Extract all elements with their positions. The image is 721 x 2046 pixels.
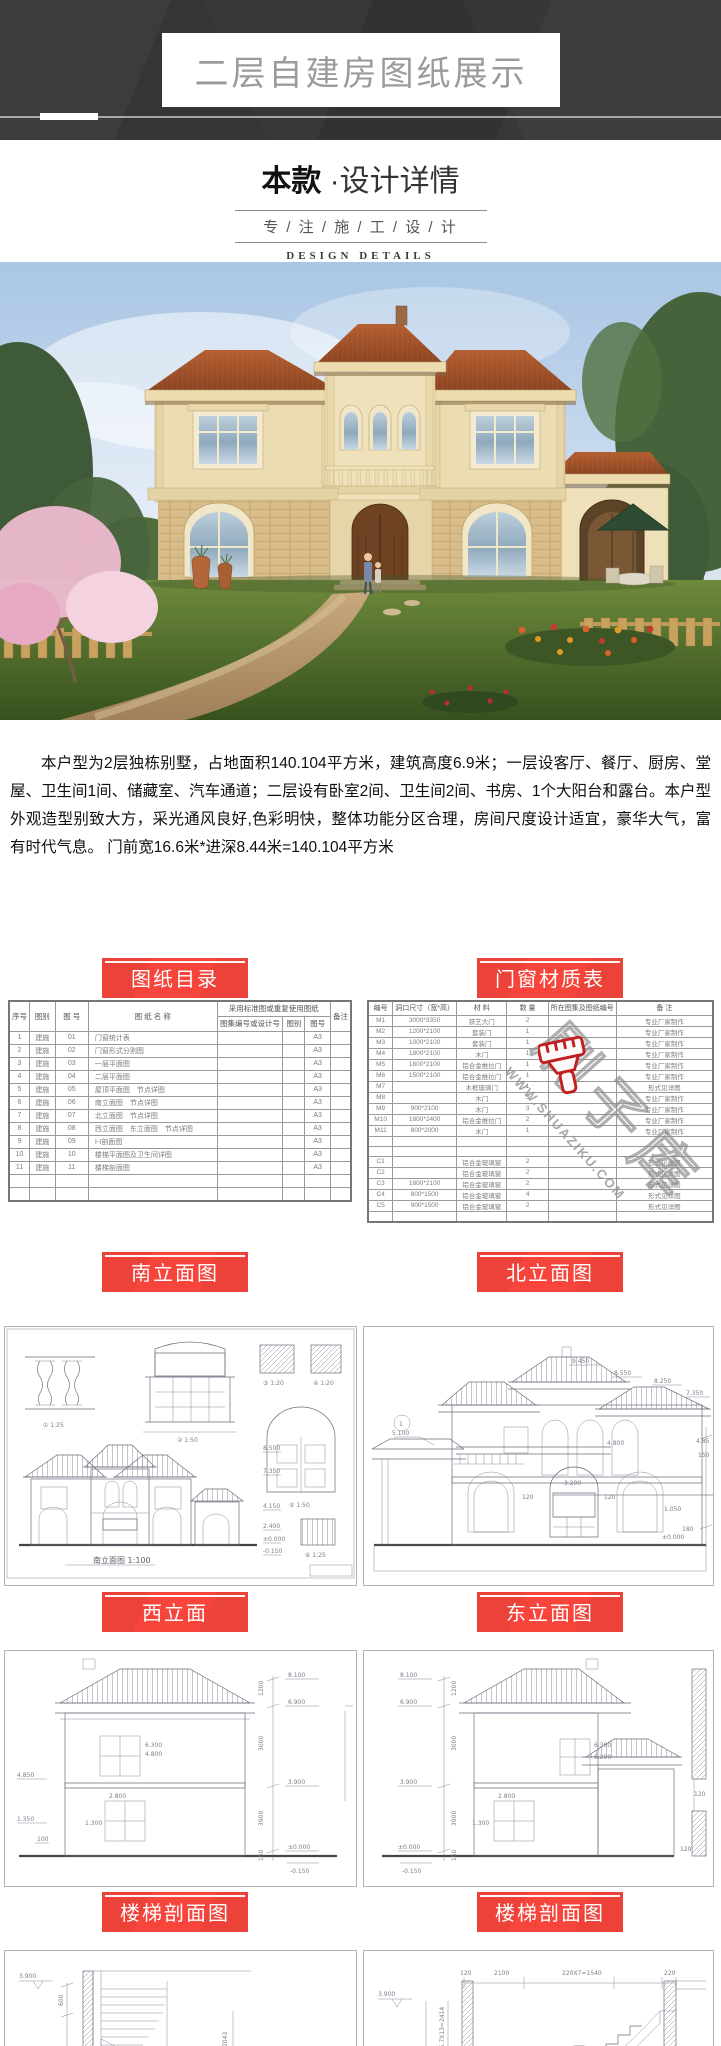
cell-size: 1800*2100 (393, 1059, 457, 1070)
cell-material: 铝合金玻璃窗 (457, 1178, 507, 1189)
table-row: 2 建施 02 门窗形式分割图 A3 (9, 1044, 351, 1057)
cell-no: 9 (9, 1135, 30, 1148)
cell-reuse-cat (283, 1044, 305, 1057)
svg-text:6.300: 6.300 (594, 1742, 611, 1749)
svg-text:8.100: 8.100 (400, 1672, 417, 1679)
cell-cat: 建施 (30, 1031, 56, 1044)
svg-text:5.100: 5.100 (392, 1430, 409, 1437)
cell-qty: 1 (507, 1037, 548, 1048)
cell-note (616, 1146, 713, 1156)
tables-row: 序号 图别 图 号 图 纸 名 称 采用标准图或重复使用图纸 备注 图集编号或设… (0, 1000, 721, 1223)
cell-name: 西立面图 东立面图 节点详图 (88, 1122, 217, 1135)
table-row (368, 1146, 713, 1156)
drawing-catalog-table: 序号 图别 图 号 图 纸 名 称 采用标准图或重复使用图纸 备注 图集编号或设… (8, 1000, 352, 1202)
table-row: 11 建施 11 楼梯剖面图 A3 (9, 1161, 351, 1174)
svg-text:150: 150 (258, 1849, 265, 1861)
north-elevation-panel: 9.450 8.550 8.250 7.350 1 5.100 4.800 3.… (363, 1326, 714, 1586)
cell-location (548, 1200, 616, 1211)
table-row: 4 建施 04 二层平面图 A3 (9, 1070, 351, 1083)
cell-no: 8 (9, 1122, 30, 1135)
cell-location (548, 1178, 616, 1189)
cell-qty (507, 1146, 548, 1156)
cell-reuse-id (217, 1044, 283, 1057)
page-title-bold: 本款 (261, 165, 321, 198)
svg-text:150: 150 (451, 1849, 458, 1861)
section-label-catalog: 图纸目录 (102, 958, 248, 998)
cell-code: C2 (368, 1167, 393, 1178)
cell-material: 铝合金玻璃窗 (457, 1167, 507, 1178)
table-row: M3 1000*2100 套装门 1 专业厂家制作 (368, 1037, 713, 1048)
cell-note (330, 1174, 351, 1187)
cell-material: 铁艺大门 (457, 1015, 507, 1026)
table-row: M1 3000*3350 铁艺大门 2 专业厂家制作 (368, 1015, 713, 1026)
cell-code: C3 (368, 1178, 393, 1189)
cell-reuse-cat (283, 1083, 305, 1096)
page-title-rest: ·设计详情 (321, 165, 459, 198)
cell-note (330, 1031, 351, 1044)
cell-size: 800*2000 (393, 1125, 457, 1136)
col-header-reuse-cat: 图别 (283, 1016, 305, 1031)
cell-num: 02 (55, 1044, 88, 1057)
svg-text:-0.150: -0.150 (263, 1548, 283, 1555)
svg-text:2.800: 2.800 (498, 1793, 515, 1800)
cell-note: 形式见详图 (616, 1178, 713, 1189)
label-row-tables: 图纸目录 门窗材质表 (0, 958, 721, 998)
svg-text:3.900: 3.900 (400, 1779, 417, 1786)
cell-reuse-no (305, 1187, 331, 1201)
cell-code: M3 (368, 1037, 393, 1048)
cell-reuse-no: A3 (305, 1083, 331, 1096)
cell-note (330, 1096, 351, 1109)
svg-text:120: 120 (522, 1494, 534, 1501)
cell-reuse-cat (283, 1096, 305, 1109)
cell-num (55, 1187, 88, 1201)
label-row-stairs: 楼梯剖面图 楼梯剖面图 (0, 1892, 721, 1932)
svg-text:220: 220 (664, 1970, 676, 1977)
cell-note (330, 1083, 351, 1096)
table-row: M5 1800*2100 铝合金推拉门 1 专业厂家制作 (368, 1059, 713, 1070)
product-detail-page: 二层自建房图纸展示 本款 ·设计详情 专 / 注 / 施 / 工 / 设 / 计… (0, 0, 721, 2046)
cell-code: M8 (368, 1092, 393, 1103)
cell-code: M10 (368, 1114, 393, 1125)
col-header-code: 编号 (368, 1001, 393, 1016)
cell-no: 11 (9, 1161, 30, 1174)
svg-text:3.900: 3.900 (288, 1779, 305, 1786)
cell-note (330, 1161, 351, 1174)
cell-material: 铝合金推拉门 (457, 1114, 507, 1125)
cell-material: 铝合金推拉门 (457, 1059, 507, 1070)
svg-text:4.800: 4.800 (607, 1440, 624, 1447)
cell-note: 专业厂家制作 (616, 1092, 713, 1103)
svg-text:120: 120 (604, 1494, 616, 1501)
cell-material: 铝合金玻璃窗 (457, 1200, 507, 1211)
cell-num: 03 (55, 1057, 88, 1070)
cell-material: 铝合金玻璃窗 (457, 1189, 507, 1200)
svg-text:±0.000: ±0.000 (662, 1534, 684, 1541)
cell-note (330, 1070, 351, 1083)
cell-cat: 建施 (30, 1096, 56, 1109)
stair-section-left-panel: 3.900 ±0.000 600 2400 900 (4, 1950, 357, 2046)
cell-qty: 1 (507, 1081, 548, 1092)
cell-location (548, 1103, 616, 1114)
cell-cat: 建施 (30, 1122, 56, 1135)
cell-note (330, 1135, 351, 1148)
section-label-stair-left: 楼梯剖面图 (102, 1892, 248, 1932)
banner-title: 二层自建房图纸展示 (195, 46, 528, 95)
cell-reuse-id (217, 1135, 283, 1148)
cell-qty: 2 (507, 1178, 548, 1189)
stair-panels: 3.900 ±0.000 600 2400 900 (0, 1950, 721, 2046)
svg-text:1.350: 1.350 (17, 1816, 34, 1823)
elevation-panels-1: ① 1:25 ② 1:50 ③ 1:20 ④ 1:20 (0, 1326, 721, 1586)
table-row: 1 建施 01 门窗统计表 A3 (9, 1031, 351, 1044)
svg-text:2.400: 2.400 (263, 1523, 280, 1530)
cell-num (55, 1174, 88, 1187)
cell-reuse-cat (283, 1187, 305, 1201)
cell-size: 1800*2400 (393, 1114, 457, 1125)
col-header-note: 备 注 (616, 1001, 713, 1016)
cell-material: 套装门 (457, 1037, 507, 1048)
cell-reuse-id (217, 1187, 283, 1201)
cell-qty: 2 (507, 1114, 548, 1125)
col-header-no: 序号 (9, 1001, 30, 1032)
cell-qty: 1 (507, 1070, 548, 1081)
cell-reuse-id (217, 1148, 283, 1161)
cell-note: 专业厂家制作 (616, 1037, 713, 1048)
cell-material: 铝合金玻璃窗 (457, 1156, 507, 1167)
cell-note (330, 1057, 351, 1070)
table-row: 8 建施 08 西立面图 东立面图 节点详图 A3 (9, 1122, 351, 1135)
cell-size: 1000*2100 (393, 1037, 457, 1048)
svg-text:⑤ 1:50: ⑤ 1:50 (289, 1502, 310, 1509)
cell-num: 04 (55, 1070, 88, 1083)
cell-material: 木门 (457, 1092, 507, 1103)
table-row: 10 建施 10 楼梯平面图及卫生间详图 A3 (9, 1148, 351, 1161)
elevation-panels-2: 4.850 1.350 100 6.300 4.800 2.800 1.300 … (0, 1650, 721, 1887)
cell-cat: 建施 (30, 1161, 56, 1174)
cell-reuse-id (217, 1070, 283, 1083)
cell-cat: 建施 (30, 1083, 56, 1096)
cell-cat (30, 1187, 56, 1201)
south-elevation-panel: ① 1:25 ② 1:50 ③ 1:20 ④ 1:20 (4, 1326, 357, 1586)
svg-text:185.7X11=2043: 185.7X11=2043 (222, 2031, 229, 2046)
cell-reuse-no: A3 (305, 1122, 331, 1135)
svg-text:6.200: 6.200 (594, 1754, 611, 1761)
table-row (368, 1211, 713, 1222)
svg-text:3000: 3000 (258, 1735, 265, 1750)
header-divider-line (0, 116, 721, 118)
svg-text:600: 600 (58, 1994, 65, 2006)
cell-name: 北立面图 节点详图 (88, 1109, 217, 1122)
cell-name (88, 1187, 217, 1201)
cell-location (548, 1070, 616, 1081)
cell-size: 800*1500 (393, 1189, 457, 1200)
cell-cat: 建施 (30, 1109, 56, 1122)
svg-text:1.300: 1.300 (472, 1820, 489, 1827)
cell-material: 套装门 (457, 1026, 507, 1037)
svg-text:4.150: 4.150 (263, 1503, 280, 1510)
cell-code: M5 (368, 1059, 393, 1070)
cell-num: 01 (55, 1031, 88, 1044)
svg-text:③ 1:20: ③ 1:20 (263, 1380, 284, 1387)
svg-text:② 1:50: ② 1:50 (177, 1437, 198, 1444)
cell-qty: 1 (507, 1125, 548, 1136)
col-header-note: 备注 (330, 1001, 351, 1032)
svg-text:9.450: 9.450 (572, 1358, 589, 1365)
cell-name: 南立面图 节点详图 (88, 1096, 217, 1109)
cell-num: 10 (55, 1148, 88, 1161)
svg-text:1200: 1200 (451, 1680, 458, 1695)
svg-text:220X7=1540: 220X7=1540 (562, 1970, 602, 1977)
cell-code: M11 (368, 1125, 393, 1136)
svg-text:8.100: 8.100 (288, 1672, 305, 1679)
cell-no: 5 (9, 1083, 30, 1096)
cell-reuse-cat (283, 1109, 305, 1122)
table-row: C2 铝合金玻璃窗 2 形式见详图 (368, 1167, 713, 1178)
table-row: C5 900*1500 铝合金玻璃窗 2 形式见详图 (368, 1200, 713, 1211)
cell-location (548, 1156, 616, 1167)
cell-num: 07 (55, 1109, 88, 1122)
col-header-reuse-id: 图集编号或设计号 (217, 1016, 283, 1031)
cell-qty: 1 (507, 1048, 548, 1059)
cell-code (368, 1211, 393, 1222)
east-elevation-panel: 6.300 6.200 2.800 1.300 8.100 6.900 3.90… (363, 1650, 714, 1887)
cell-note (616, 1136, 713, 1146)
cell-reuse-no: A3 (305, 1057, 331, 1070)
table-row (368, 1136, 713, 1146)
svg-text:120: 120 (460, 1970, 472, 1977)
banner-title-box: 二层自建房图纸展示 (162, 33, 560, 107)
svg-text:7.350: 7.350 (686, 1390, 703, 1397)
cell-qty: 1 (507, 1059, 548, 1070)
cell-location (548, 1114, 616, 1125)
cell-name: 门窗形式分割图 (88, 1044, 217, 1057)
svg-text:185.7X13=2414: 185.7X13=2414 (439, 2006, 446, 2046)
table-row: 3 建施 03 一层平面图 A3 (9, 1057, 351, 1070)
cell-material: 木框玻璃门 (457, 1081, 507, 1092)
label-row-south-north: 南立面图 北立面图 (0, 1252, 721, 1292)
svg-text:120: 120 (694, 1791, 706, 1798)
svg-text:150: 150 (698, 1452, 710, 1459)
cell-note: 专业厂家制作 (616, 1015, 713, 1026)
cell-reuse-cat (283, 1135, 305, 1148)
cell-no: 4 (9, 1070, 30, 1083)
cell-code: M6 (368, 1070, 393, 1081)
svg-text:180: 180 (682, 1526, 694, 1533)
cell-note: 形式见详图 (616, 1189, 713, 1200)
svg-text:3.200: 3.200 (564, 1480, 581, 1487)
svg-text:⑥ 1:25: ⑥ 1:25 (305, 1552, 326, 1559)
col-header-location: 所在图集及图纸编号 (548, 1001, 616, 1016)
cell-location (548, 1136, 616, 1146)
cell-reuse-id (217, 1083, 283, 1096)
cell-note (330, 1148, 351, 1161)
table-row: M2 1200*2100 套装门 1 专业厂家制作 (368, 1026, 713, 1037)
cell-location (548, 1037, 616, 1048)
cell-no: 10 (9, 1148, 30, 1161)
cell-no: 1 (9, 1031, 30, 1044)
cell-material (457, 1146, 507, 1156)
col-header-num: 图 号 (55, 1001, 88, 1032)
cell-material (457, 1136, 507, 1146)
cell-note: 形式见详图 (616, 1156, 713, 1167)
cell-size: 900*2100 (393, 1103, 457, 1114)
col-header-size: 洞口尺寸（宽*高） (393, 1001, 457, 1016)
cell-note (330, 1122, 351, 1135)
cell-note: 专业厂家制作 (616, 1125, 713, 1136)
svg-text:±0.000: ±0.000 (288, 1844, 310, 1851)
table-row: M10 1800*2400 铝合金推拉门 2 专业厂家制作 (368, 1114, 713, 1125)
cell-code: C4 (368, 1189, 393, 1200)
cell-note (616, 1211, 713, 1222)
svg-text:1.300: 1.300 (85, 1820, 102, 1827)
cell-qty: 2 (507, 1200, 548, 1211)
col-header-reuse-no: 图号 (305, 1016, 331, 1031)
cell-no: 3 (9, 1057, 30, 1070)
table-row: C3 1800*2100 铝合金玻璃窗 2 形式见详图 (368, 1178, 713, 1189)
cell-reuse-cat (283, 1057, 305, 1070)
col-header-reuse-group: 采用标准图或重复使用图纸 (217, 1001, 330, 1017)
cell-reuse-cat (283, 1031, 305, 1044)
cell-location (548, 1026, 616, 1037)
cell-location (548, 1048, 616, 1059)
cell-reuse-id (217, 1109, 283, 1122)
cell-qty: 2 (507, 1015, 548, 1026)
svg-text:100: 100 (37, 1836, 49, 1843)
cell-note (330, 1044, 351, 1057)
cell-no: 6 (9, 1096, 30, 1109)
cell-qty (507, 1136, 548, 1146)
cell-cat: 建施 (30, 1148, 56, 1161)
table-row: 9 建施 09 Ⅰ-Ⅰ剖面图 A3 (9, 1135, 351, 1148)
cell-num: 08 (55, 1122, 88, 1135)
cell-location (548, 1081, 616, 1092)
cell-num: 09 (55, 1135, 88, 1148)
cell-reuse-no: A3 (305, 1070, 331, 1083)
cell-reuse-no (305, 1174, 331, 1187)
svg-text:6.300: 6.300 (145, 1742, 162, 1749)
table-row: M9 900*2100 木门 3 专业厂家制作 (368, 1103, 713, 1114)
table-row (9, 1174, 351, 1187)
cell-code: M9 (368, 1103, 393, 1114)
cell-cat: 建施 (30, 1057, 56, 1070)
cell-reuse-no: A3 (305, 1109, 331, 1122)
cell-note: 形式见详图 (616, 1167, 713, 1178)
cell-no (9, 1174, 30, 1187)
cell-code: M1 (368, 1015, 393, 1026)
cell-size (393, 1146, 457, 1156)
table-row: 6 建施 06 南立面图 节点详图 A3 (9, 1096, 351, 1109)
cell-material: 铝合金推拉门 (457, 1070, 507, 1081)
cell-name: 屋顶平面图 节点详图 (88, 1083, 217, 1096)
west-elevation-panel: 4.850 1.350 100 6.300 4.800 2.800 1.300 … (4, 1650, 357, 1887)
cell-qty: 4 (507, 1189, 548, 1200)
cell-note: 形式见详图 (616, 1200, 713, 1211)
cell-code: M4 (368, 1048, 393, 1059)
svg-text:4.85: 4.85 (696, 1438, 710, 1445)
svg-text:-0.150: -0.150 (290, 1868, 310, 1875)
cell-location (548, 1167, 616, 1178)
svg-text:8.550: 8.550 (614, 1370, 631, 1377)
svg-text:3900: 3900 (258, 1810, 265, 1825)
svg-text:4.850: 4.850 (17, 1772, 34, 1779)
svg-text:120: 120 (680, 1846, 692, 1853)
cell-size (393, 1136, 457, 1146)
section-label-north-elevation: 北立面图 (477, 1252, 623, 1292)
cell-note (330, 1109, 351, 1122)
svg-text:6.900: 6.900 (288, 1699, 305, 1706)
svg-text:3900: 3900 (451, 1810, 458, 1825)
cell-name: Ⅰ-Ⅰ剖面图 (88, 1135, 217, 1148)
cell-size (393, 1092, 457, 1103)
cell-location (548, 1059, 616, 1070)
cell-location (548, 1189, 616, 1200)
cell-name: 一层平面图 (88, 1057, 217, 1070)
svg-text:南立面图 1:100: 南立面图 1:100 (93, 1555, 151, 1565)
svg-text:8.500: 8.500 (263, 1445, 280, 1452)
cell-qty: 1 (507, 1026, 548, 1037)
cell-code (368, 1146, 393, 1156)
cell-location (548, 1146, 616, 1156)
cell-code: M7 (368, 1081, 393, 1092)
table-row: 5 建施 05 屋顶平面图 节点详图 A3 (9, 1083, 351, 1096)
cell-size: 1200*2100 (393, 1026, 457, 1037)
svg-text:3.900: 3.900 (19, 1973, 36, 1980)
cell-no: 2 (9, 1044, 30, 1057)
cell-code: C1 (368, 1156, 393, 1167)
page-header: 二层自建房图纸展示 (0, 0, 721, 140)
stair-section-right-panel: 120 2100 220X7=1540 220 3.900 ±0.000 -0.… (363, 1950, 714, 2046)
cell-reuse-cat (283, 1174, 305, 1187)
cell-qty: 3 (507, 1103, 548, 1114)
svg-text:1.050: 1.050 (664, 1506, 681, 1513)
col-header-material: 材 料 (457, 1001, 507, 1016)
cell-num: 05 (55, 1083, 88, 1096)
cell-code: M2 (368, 1026, 393, 1037)
section-label-south-elevation: 南立面图 (102, 1252, 248, 1292)
cell-note: 专业厂家制作 (616, 1026, 713, 1037)
cell-reuse-cat (283, 1161, 305, 1174)
table-row (9, 1187, 351, 1201)
cell-reuse-id (217, 1174, 283, 1187)
table-row: M6 1500*2100 铝合金推拉门 1 专业厂家制作 (368, 1070, 713, 1081)
svg-text:7.350: 7.350 (263, 1468, 280, 1475)
cell-num: 06 (55, 1096, 88, 1109)
cell-code: C5 (368, 1200, 393, 1211)
cell-cat: 建施 (30, 1044, 56, 1057)
svg-text:4.800: 4.800 (145, 1751, 162, 1758)
cell-no: 7 (9, 1109, 30, 1122)
cell-size: 900*1500 (393, 1200, 457, 1211)
cell-size (393, 1081, 457, 1092)
cell-location (548, 1125, 616, 1136)
cell-name (88, 1174, 217, 1187)
cell-reuse-cat (283, 1070, 305, 1083)
cell-code (368, 1136, 393, 1146)
svg-text:±0.000: ±0.000 (398, 1844, 420, 1851)
cell-note: 专业厂家制作 (616, 1114, 713, 1125)
svg-text:3000: 3000 (451, 1735, 458, 1750)
cell-size (393, 1156, 457, 1167)
svg-text:6.900: 6.900 (400, 1699, 417, 1706)
table-row: C1 铝合金玻璃窗 2 形式见详图 (368, 1156, 713, 1167)
cell-size (393, 1211, 457, 1222)
svg-text:1: 1 (399, 1421, 403, 1428)
cell-qty: 2 (507, 1156, 548, 1167)
cell-reuse-no: A3 (305, 1135, 331, 1148)
cell-name: 楼梯剖面图 (88, 1161, 217, 1174)
cell-reuse-no: A3 (305, 1161, 331, 1174)
